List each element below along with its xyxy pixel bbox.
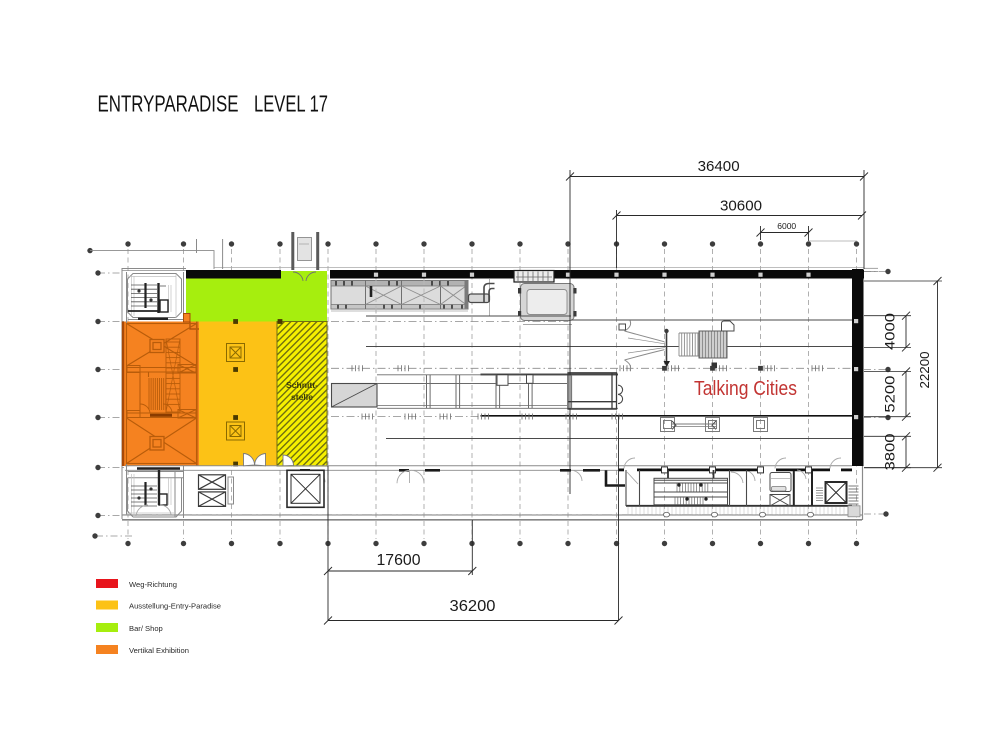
svg-text:4000: 4000	[882, 313, 898, 350]
svg-text:Schnitt-: Schnitt-	[286, 380, 318, 390]
svg-text:30600: 30600	[720, 198, 762, 215]
svg-text:5200: 5200	[882, 375, 898, 412]
svg-text:22200: 22200	[917, 352, 932, 389]
svg-text:Talking Cities: Talking Cities	[694, 377, 797, 400]
svg-text:6000: 6000	[777, 221, 796, 231]
svg-text:Bar/ Shop: Bar/ Shop	[129, 624, 163, 633]
svg-text:36400: 36400	[698, 158, 740, 175]
svg-text:ENTRYPARADISE: ENTRYPARADISE	[98, 91, 239, 117]
svg-text:3800: 3800	[882, 433, 898, 470]
svg-text:Vertikal Exhibition: Vertikal Exhibition	[129, 646, 189, 655]
svg-text:Ausstellung-Entry-Paradise: Ausstellung-Entry-Paradise	[129, 602, 221, 611]
svg-text:36200: 36200	[450, 598, 496, 615]
svg-text:LEVEL 17: LEVEL 17	[254, 91, 328, 117]
svg-text:Weg-Richtung: Weg-Richtung	[129, 580, 177, 589]
svg-text:stelle: stelle	[291, 392, 313, 402]
svg-text:17600: 17600	[377, 552, 421, 569]
